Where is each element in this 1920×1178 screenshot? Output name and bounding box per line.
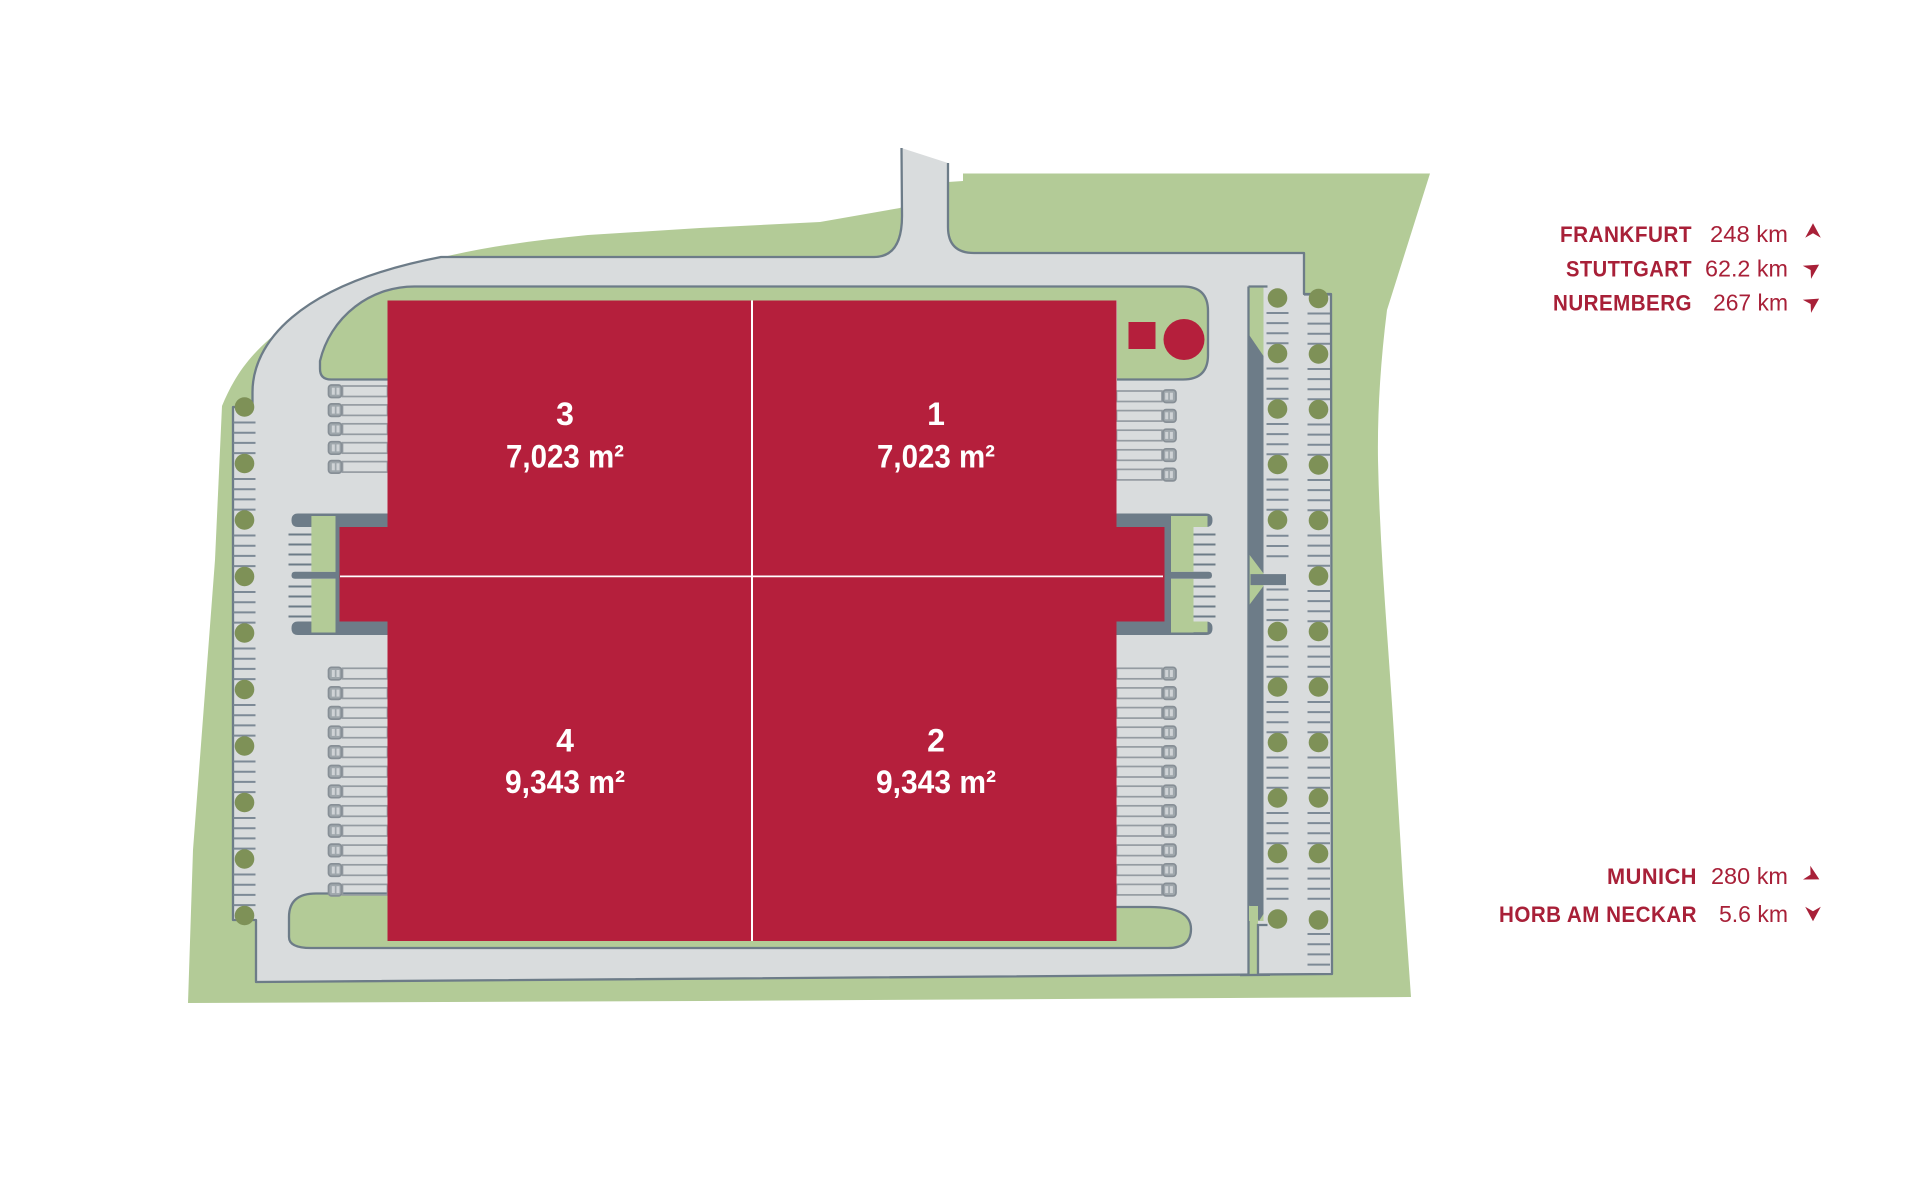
svg-text:1: 1 — [927, 396, 945, 432]
svg-text:7,023 m²: 7,023 m² — [877, 439, 995, 475]
svg-text:9,343 m²: 9,343 m² — [876, 764, 996, 800]
svg-text:HORB AM NECKAR: HORB AM NECKAR — [1499, 902, 1697, 927]
svg-text:3: 3 — [556, 396, 574, 432]
svg-text:4: 4 — [556, 723, 574, 759]
svg-text:NUREMBERG: NUREMBERG — [1553, 291, 1692, 316]
svg-text:5.6 km: 5.6 km — [1719, 901, 1788, 927]
svg-text:280 km: 280 km — [1711, 863, 1788, 889]
svg-text:STUTTGART: STUTTGART — [1566, 257, 1692, 282]
svg-text:9,343 m²: 9,343 m² — [505, 764, 625, 800]
svg-text:267 km: 267 km — [1713, 290, 1788, 316]
svg-text:248 km: 248 km — [1710, 221, 1788, 247]
svg-text:7,023 m²: 7,023 m² — [506, 439, 624, 475]
svg-text:FRANKFURT: FRANKFURT — [1560, 222, 1692, 247]
svg-text:MUNICH: MUNICH — [1607, 864, 1697, 889]
svg-text:62.2 km: 62.2 km — [1705, 256, 1788, 282]
svg-text:2: 2 — [927, 723, 945, 759]
